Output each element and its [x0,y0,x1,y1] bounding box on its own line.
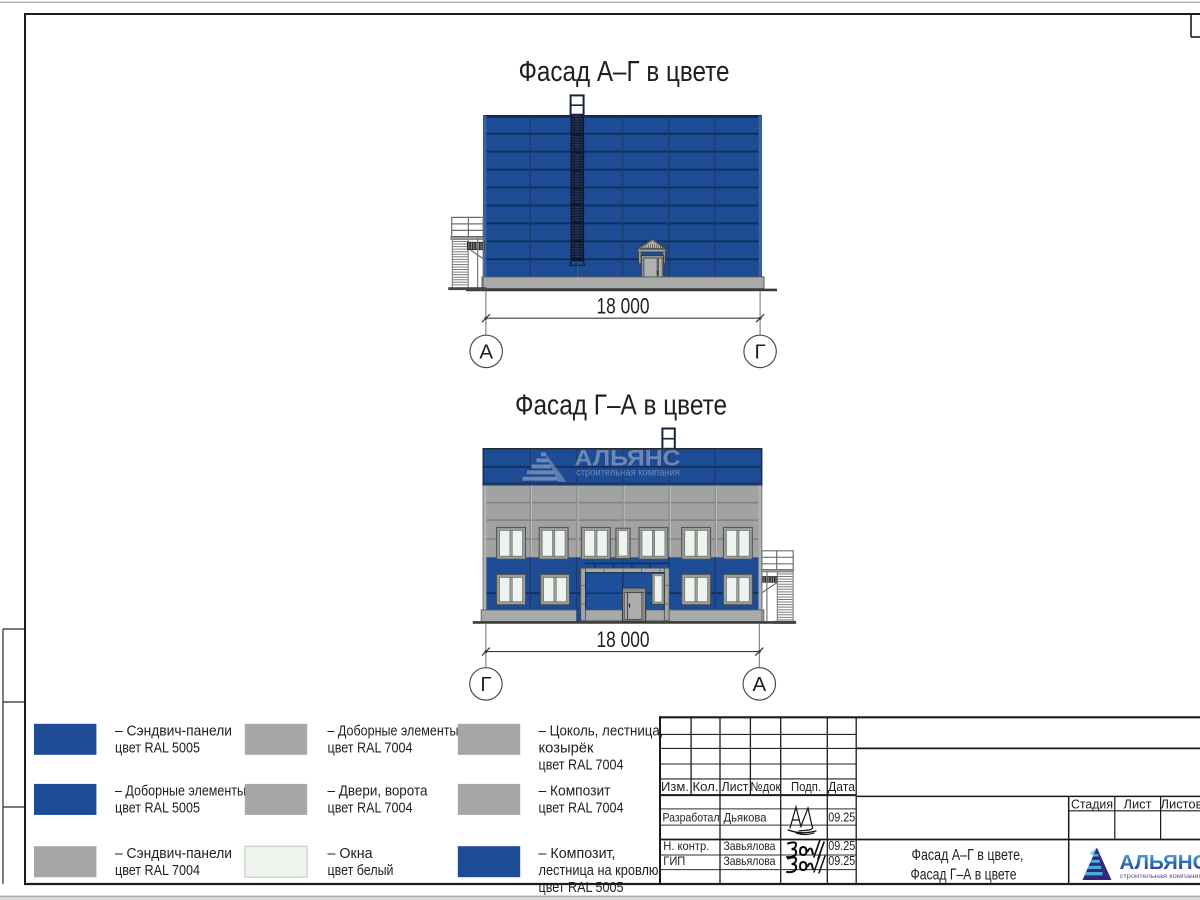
svg-text:Фасад А–Г в цвете,: Фасад А–Г в цвете, [912,847,1024,864]
svg-text:– Композит: – Композит [539,783,611,800]
svg-text:Изм.: Изм. [661,779,689,794]
svg-text:Лист: Лист [1124,797,1152,812]
svg-text:Дата: Дата [828,779,856,794]
svg-text:Дьякова: Дьякова [724,811,767,825]
svg-text:цвет RAL 5005: цвет RAL 5005 [115,800,200,817]
svg-text:строительная компания: строительная компания [1120,873,1200,880]
svg-text:– Композит,: – Композит, [539,845,616,862]
svg-text:цвет RAL 7004: цвет RAL 7004 [115,862,200,879]
svg-text:цвет RAL 5005: цвет RAL 5005 [115,740,200,757]
svg-text:Фасад Г–А в цвете: Фасад Г–А в цвете [911,867,1017,884]
svg-text:козырёк: козырёк [539,740,594,757]
svg-text:Подп.: Подп. [791,779,821,794]
svg-text:А: А [752,673,766,696]
svg-text:Г: Г [755,340,766,363]
svg-text:цвет RAL 7004: цвет RAL 7004 [328,740,413,757]
svg-text:18 000: 18 000 [597,627,650,652]
svg-text:Фасад Г–А в цвете: Фасад Г–А в цвете [515,390,727,422]
svg-text:цвет белый: цвет белый [328,862,394,879]
svg-text:Лист: Лист [722,779,749,794]
svg-text:– Доборные элементы: – Доборные элементы [115,783,246,800]
svg-text:строительная компания: строительная компания [576,467,680,478]
svg-text:Кол.: Кол. [693,779,719,794]
svg-text:– Сэндвич-панели: – Сэндвич-панели [115,723,232,740]
svg-text:цвет RAL 7004: цвет RAL 7004 [539,757,624,774]
svg-text:18 000: 18 000 [597,293,650,318]
svg-text:– Сэндвич-панели: – Сэндвич-панели [115,845,232,862]
svg-text:Завьялова: Завьялова [724,854,776,868]
svg-text:09.25: 09.25 [828,854,855,868]
svg-text:Г: Г [480,673,491,696]
svg-text:А: А [479,340,493,363]
svg-text:– Двери, ворота: – Двери, ворота [328,783,429,800]
svg-text:09.25: 09.25 [828,839,855,853]
svg-text:Фасад А–Г в цвете: Фасад А–Г в цвете [519,56,730,88]
svg-text:Завьялова: Завьялова [724,839,776,853]
svg-text:№док: №док [751,779,781,794]
svg-text:– Доборные элементы: – Доборные элементы [328,723,459,740]
svg-text:цвет RAL 7004: цвет RAL 7004 [328,800,413,817]
svg-text:Разработал: Разработал [663,811,720,825]
svg-text:АЛЬЯНС: АЛЬЯНС [1120,852,1200,874]
svg-text:Стадия: Стадия [1071,797,1113,812]
svg-text:Листов: Листов [1161,797,1200,812]
svg-text:цвет RAL 7004: цвет RAL 7004 [539,800,624,817]
svg-text:– Окна: – Окна [328,845,374,862]
svg-text:лестница на кровлю: лестница на кровлю [539,862,659,879]
svg-text:Н. контр.: Н. контр. [663,839,709,853]
svg-text:09.25: 09.25 [828,811,855,825]
svg-text:– Цоколь, лестница,: – Цоколь, лестница, [539,723,664,740]
svg-text:ГИП: ГИП [663,854,685,868]
svg-text:цвет RAL 5005: цвет RAL 5005 [539,879,624,896]
